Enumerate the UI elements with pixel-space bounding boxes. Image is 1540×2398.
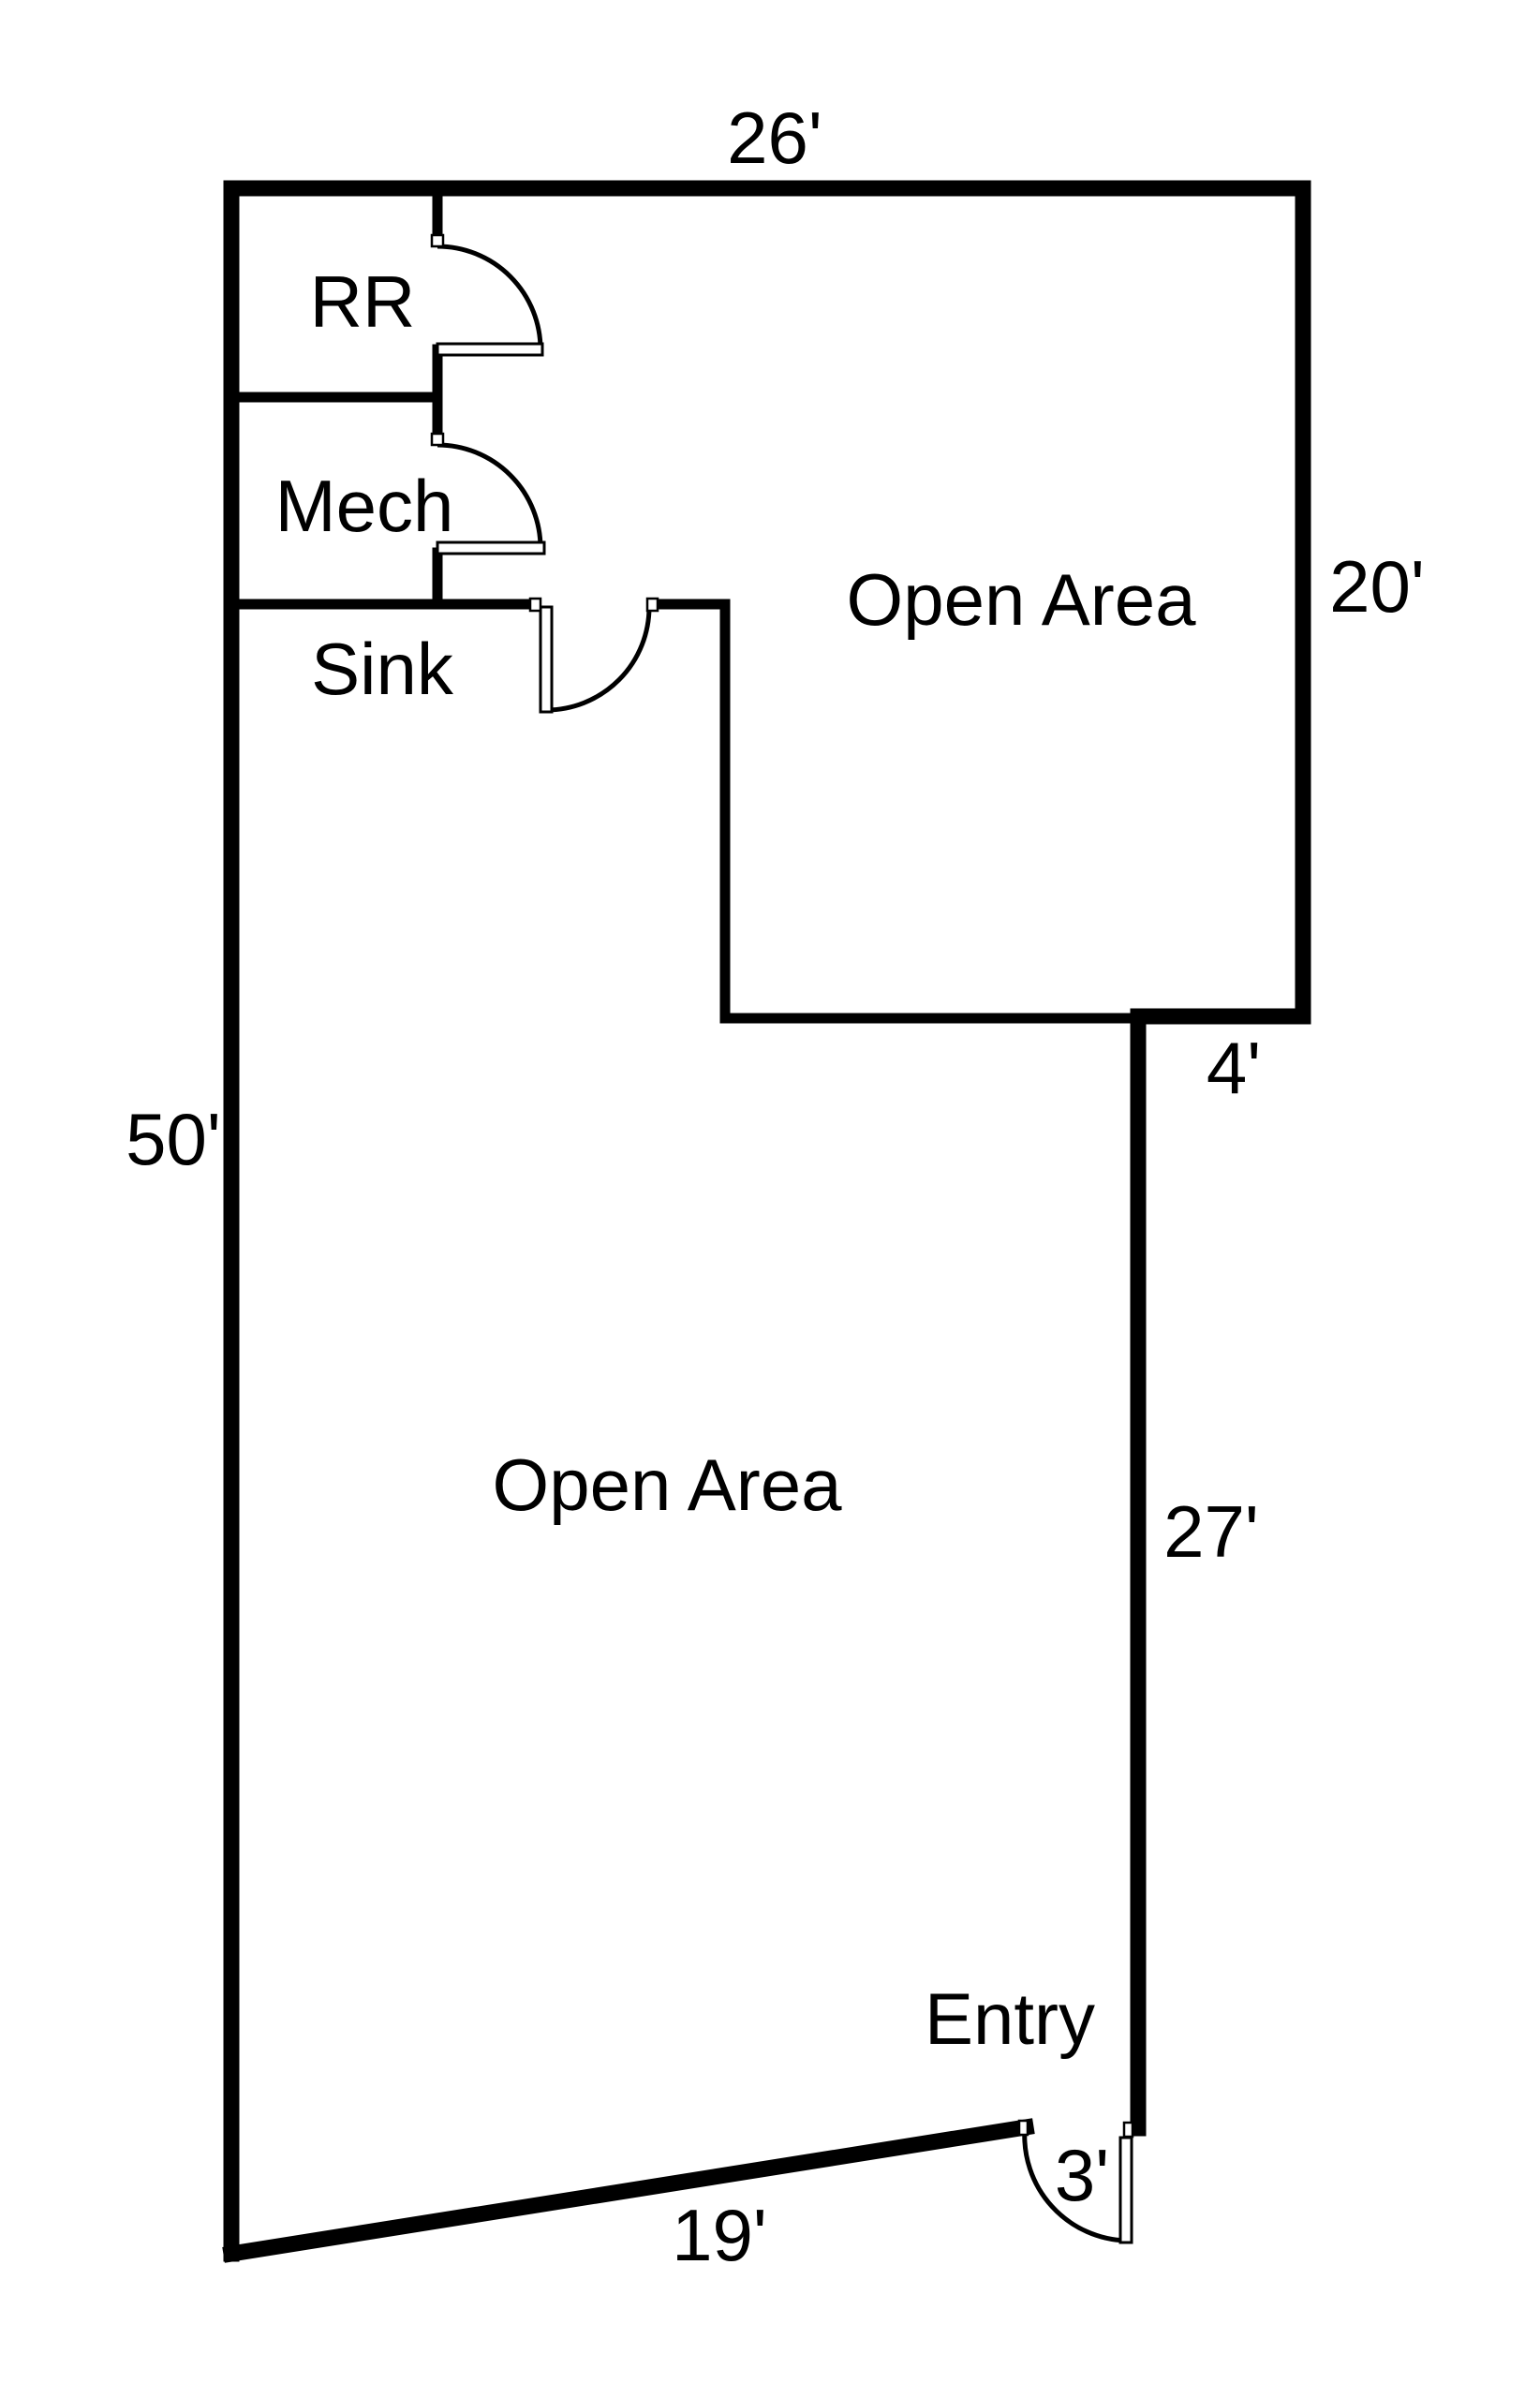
dimension-left-wall: 50' [126, 1098, 221, 1180]
room-labels: RR Mech Sink Open Area Open Area Entry [275, 260, 1196, 2060]
floor-plan: RR Mech Sink Open Area Open Area Entry 2… [0, 0, 1540, 2398]
rr-door-swing-arc [437, 246, 540, 349]
sink-door-swing-arc [546, 607, 649, 710]
dimension-labels: 26' 20' 4' 27' 50' 19' 3' [126, 96, 1425, 2276]
rr-door-jamb [432, 235, 443, 246]
rr-door-leaf [437, 344, 542, 355]
dimension-top-wall: 26' [727, 96, 822, 179]
room-label-open-area-lower: Open Area [493, 1443, 843, 1526]
entry-door-jamb-right [1124, 2123, 1133, 2137]
entry-door-jamb-left [1019, 2121, 1028, 2135]
dimension-upper-right-wall: 20' [1329, 545, 1425, 628]
mech-door-jamb [432, 434, 443, 445]
floor-plan-canvas: RR Mech Sink Open Area Open Area Entry 2… [0, 0, 1540, 2398]
sink-door-leaf [540, 607, 552, 712]
room-label-sink: Sink [311, 628, 454, 710]
wall-bottom-slanted [231, 2127, 1026, 2254]
dimension-entry-door: 3' [1055, 2134, 1109, 2216]
sink-door-jamb-left [530, 599, 540, 611]
room-label-entry: Entry [925, 1977, 1095, 2060]
dimension-lower-right-wall: 27' [1163, 1490, 1259, 1573]
room-label-rr: RR [310, 260, 416, 343]
room-label-mech: Mech [275, 465, 454, 547]
room-label-open-area-upper: Open Area [847, 558, 1197, 641]
sink-door-jamb-right [647, 599, 658, 611]
dimension-step-wall: 4' [1207, 1027, 1261, 1109]
dimension-bottom-wall: 19' [672, 2194, 767, 2276]
entry-door-leaf [1120, 2138, 1132, 2243]
